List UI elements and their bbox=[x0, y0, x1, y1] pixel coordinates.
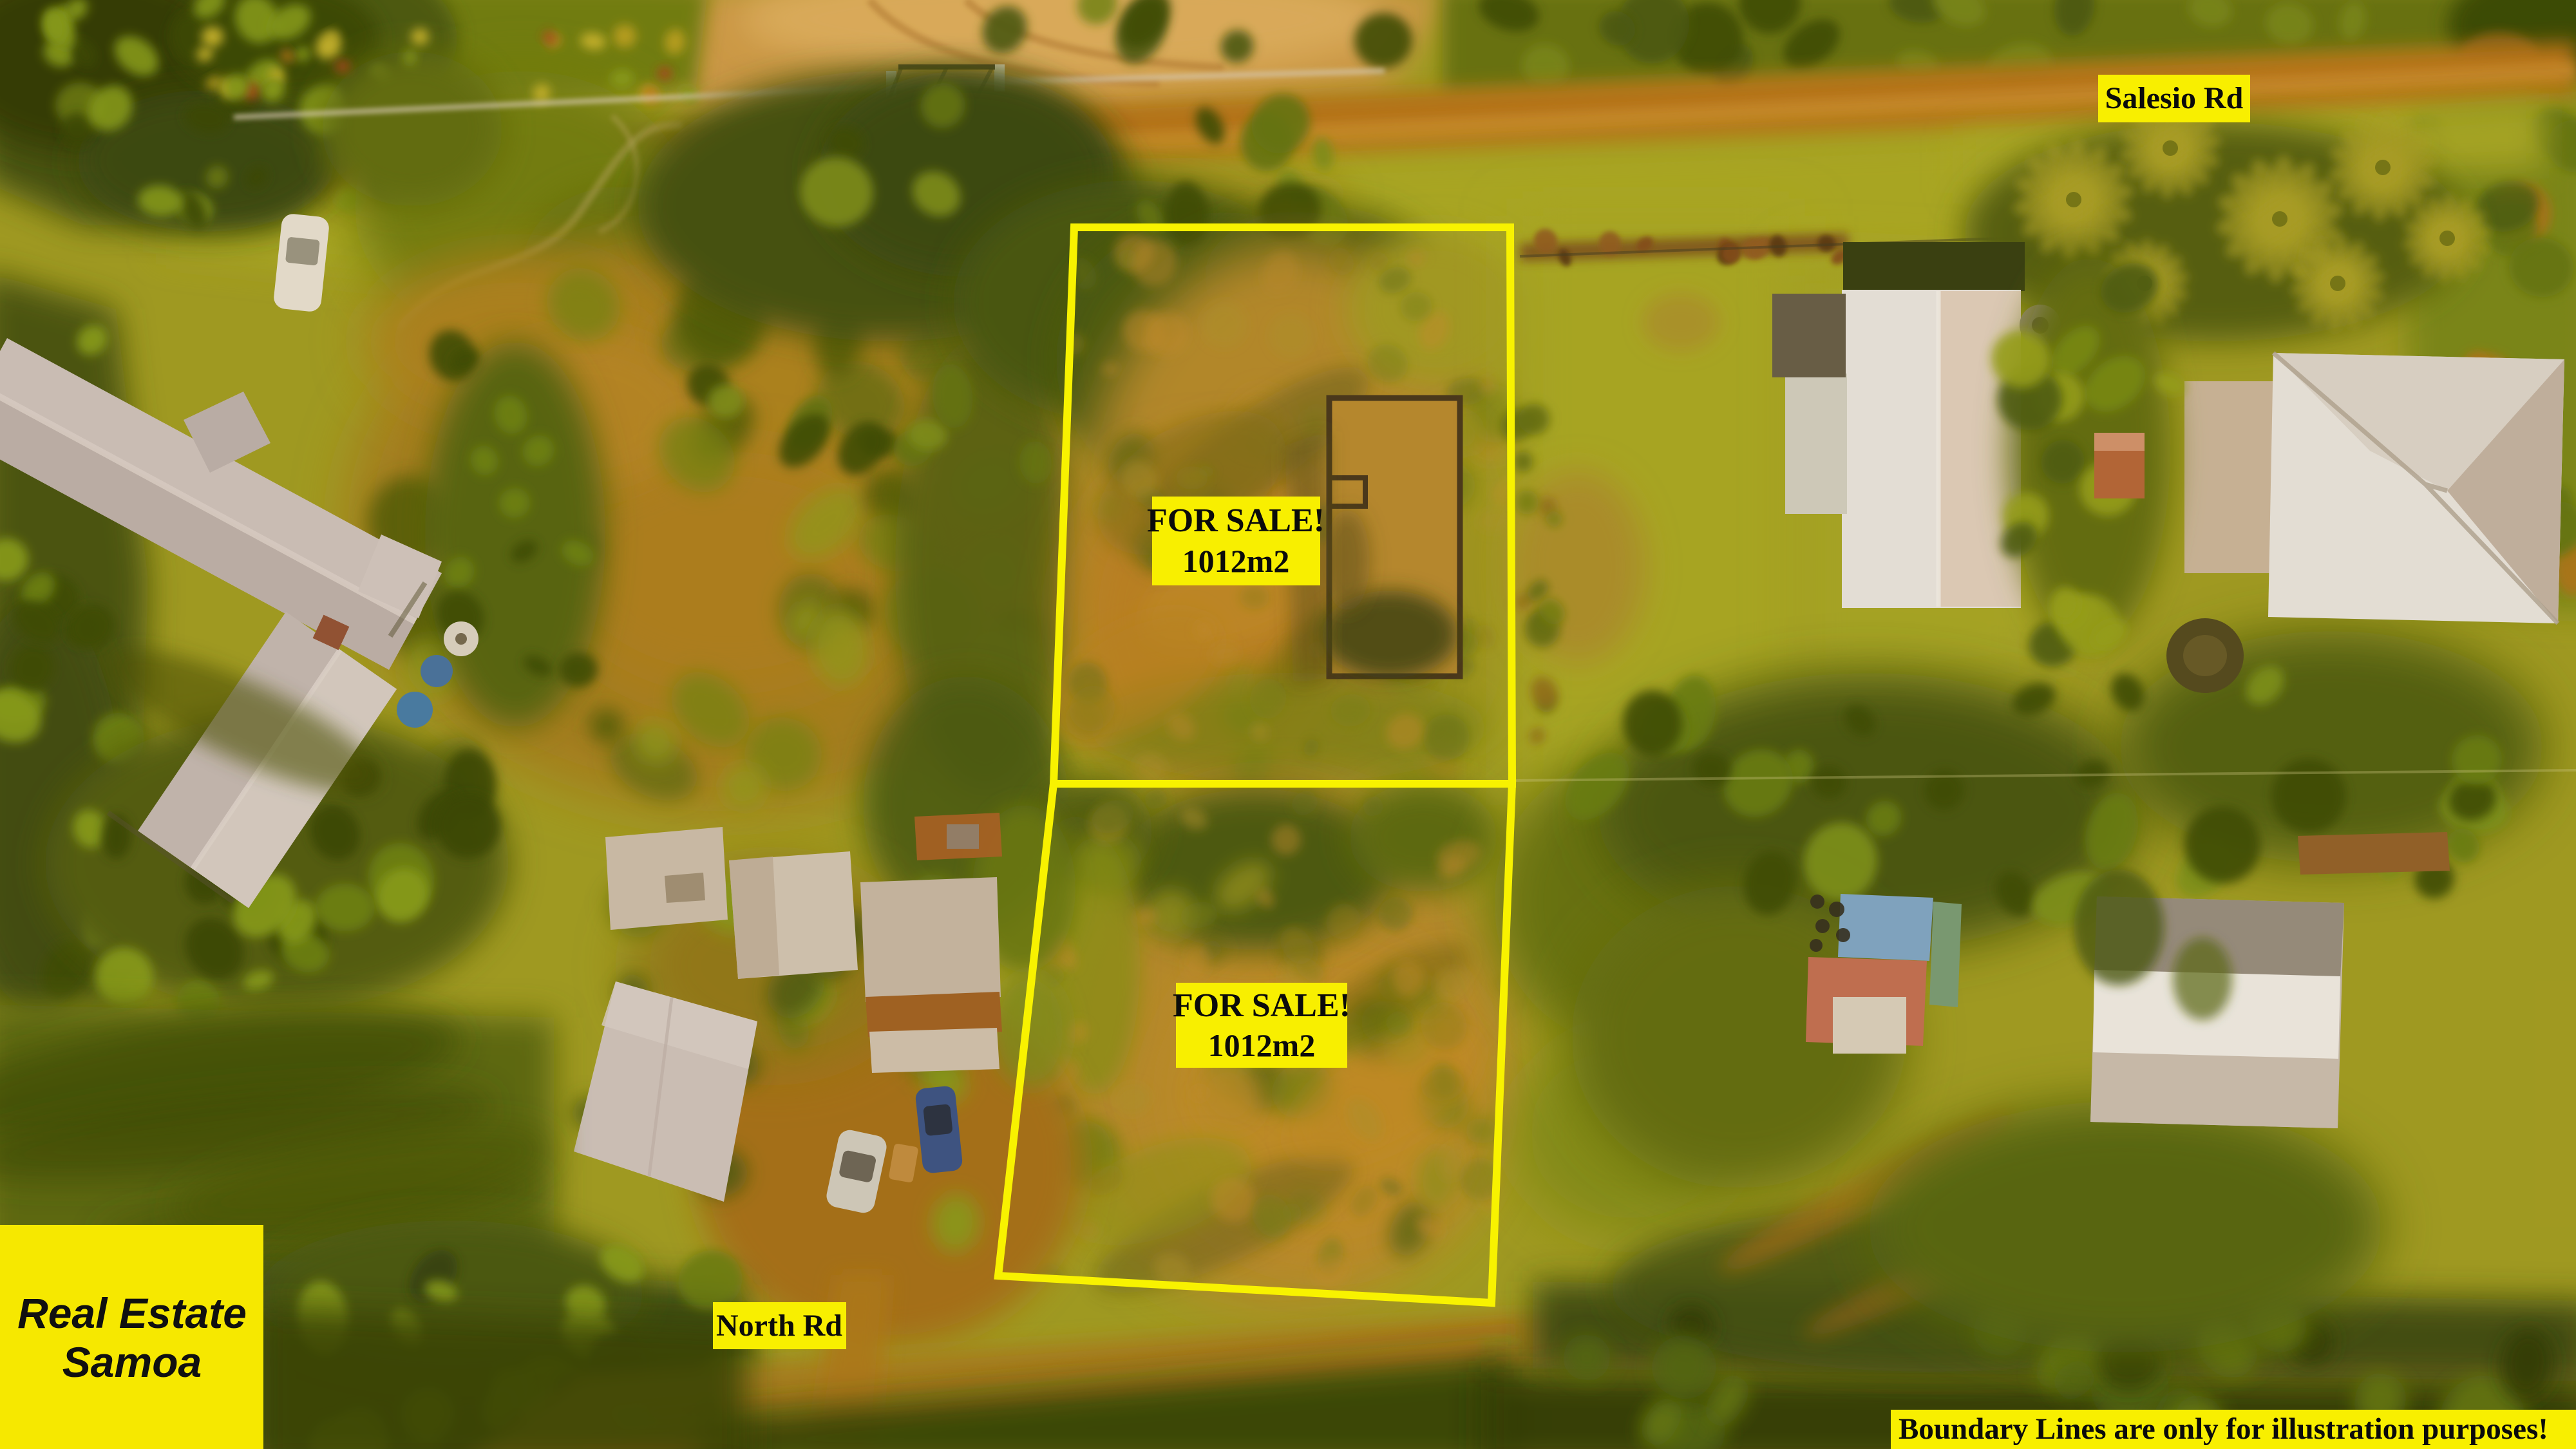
svg-text:Samoa: Samoa bbox=[62, 1338, 202, 1386]
svg-text:Real Estate: Real Estate bbox=[17, 1289, 247, 1337]
svg-text:1012m2: 1012m2 bbox=[1208, 1027, 1316, 1063]
svg-text:FOR SALE!: FOR SALE! bbox=[1173, 987, 1350, 1024]
svg-text:1012m2: 1012m2 bbox=[1182, 543, 1290, 579]
svg-text:Salesio Rd: Salesio Rd bbox=[2105, 81, 2244, 115]
svg-text:North Rd: North Rd bbox=[716, 1309, 842, 1343]
svg-text:Boundary Lines are only for il: Boundary Lines are only for illustration… bbox=[1899, 1412, 2548, 1446]
svg-text:FOR SALE!: FOR SALE! bbox=[1147, 502, 1325, 539]
